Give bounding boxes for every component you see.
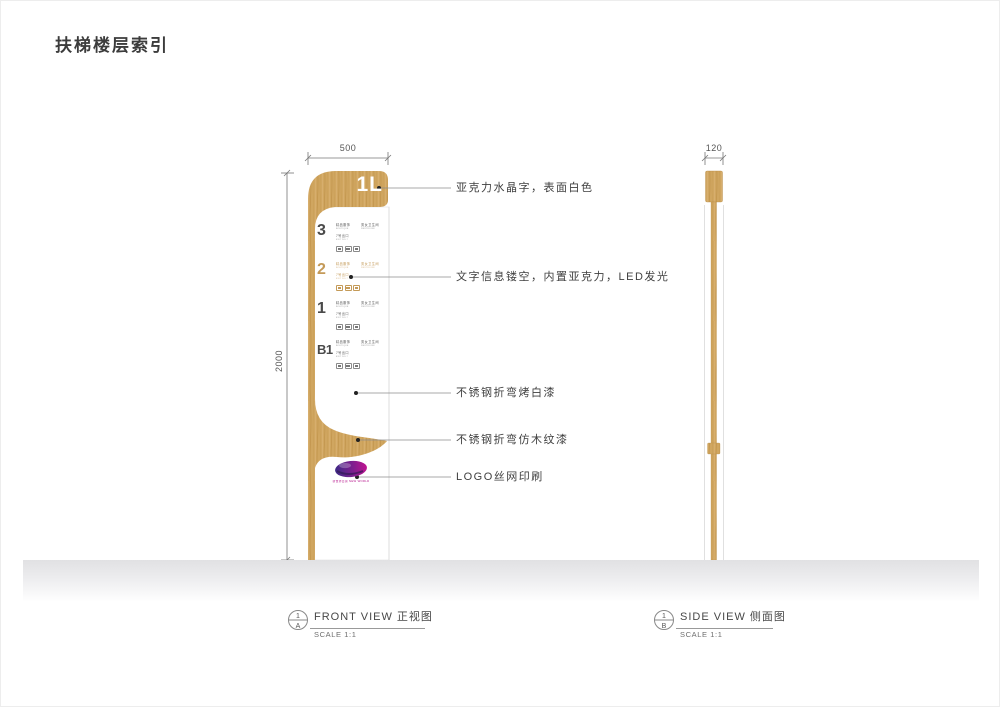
exit-name-en: EXIT NO.7 <box>336 317 349 320</box>
exit-column: 7号出口 EXIT NO.7 <box>336 274 349 281</box>
dim-line-500 <box>305 152 391 165</box>
facility-column: 男女卫生间 RESTROOM <box>361 224 379 231</box>
exit-column: 7号出口 EXIT NO.7 <box>336 313 349 320</box>
store-column: 精品服饰 BOUTIQUE <box>336 224 350 231</box>
exit-name-en: EXIT NO.7 <box>336 278 349 281</box>
side-ref-top: 1 <box>662 613 666 620</box>
logo-caption-text: 新世界百货 NEW WORLD <box>332 480 370 483</box>
elevator-icon <box>345 246 352 252</box>
restroom-icon <box>353 246 360 252</box>
amenity-icon-row <box>336 363 360 369</box>
elevator-icon <box>345 324 352 330</box>
floor-row-1: 1 精品服饰 BOUTIQUE 男女卫生间 RESTROOM 7号出口 EXIT… <box>317 299 389 335</box>
dimension-width-front: 500 <box>308 143 388 153</box>
facility-name-en: RESTROOM <box>361 267 379 270</box>
exit-column: 7号出口 EXIT NO.7 <box>336 235 349 242</box>
floor-number: B1 <box>317 341 334 359</box>
store-name-en: BOUTIQUE <box>336 306 350 309</box>
exit-column: 7号出口 EXIT NO.7 <box>336 352 349 359</box>
store-name-en: BOUTIQUE <box>336 228 350 231</box>
amenity-icon-row <box>336 285 360 291</box>
annotation-white-paint: 不锈钢折弯烤白漆 <box>456 387 556 400</box>
side-view-scale: SCALE 1:1 <box>680 630 723 639</box>
dim-line-120 <box>702 152 726 165</box>
annotation-logo-silkscreen: LOGO丝网印刷 <box>456 471 544 484</box>
front-view-scale: SCALE 1:1 <box>314 630 357 639</box>
dimension-width-side: 120 <box>697 143 731 153</box>
restroom-icon <box>353 324 360 330</box>
escalator-icon <box>336 285 343 291</box>
front-ref-top: 1 <box>296 613 300 620</box>
front-ref-bottom: A <box>296 623 301 630</box>
exit-name-en: EXIT NO.7 <box>336 356 349 359</box>
floor-number: 2 <box>317 261 334 279</box>
page-title: 扶梯楼层索引 <box>55 31 169 56</box>
annotation-woodgrain-paint: 不锈钢折弯仿木纹漆 <box>456 434 569 447</box>
floor-ground-band <box>23 560 979 602</box>
amenity-icon-row <box>336 324 360 330</box>
front-view-caption: FRONT VIEW 正视图 <box>314 611 433 624</box>
elevator-icon <box>345 285 352 291</box>
store-name-en: BOUTIQUE <box>336 267 350 270</box>
store-column: 精品服饰 BOUTIQUE <box>336 341 350 348</box>
amenity-icon-row <box>336 246 360 252</box>
escalator-icon <box>336 246 343 252</box>
restroom-icon <box>353 363 360 369</box>
side-ref-bottom: B <box>662 623 667 630</box>
floor-number: 1 <box>317 300 334 318</box>
facility-name-en: RESTROOM <box>361 345 379 348</box>
side-view-drawing <box>705 171 724 560</box>
design-sheet: 1 A 1 B 扶梯楼层索引 500 2000 120 1L 3 精品服饰 BO… <box>0 0 1000 707</box>
side-swoosh-block <box>708 443 721 454</box>
annotation-led-cutout: 文字信息镂空，内置亚克力，LED发光 <box>456 271 669 284</box>
side-view-caption: SIDE VIEW 侧面图 <box>680 611 786 624</box>
store-name-en: BOUTIQUE <box>336 345 350 348</box>
dimension-height-front: 2000 <box>274 341 284 381</box>
restroom-icon <box>353 285 360 291</box>
floor-row-b1: B1 精品服饰 BOUTIQUE 男女卫生间 RESTROOM 7号出口 EXI… <box>317 338 389 374</box>
elevator-icon <box>345 363 352 369</box>
facility-column: 男女卫生间 RESTROOM <box>361 302 379 309</box>
floor-row-3: 3 精品服饰 BOUTIQUE 男女卫生间 RESTROOM 7号出口 EXIT… <box>317 221 389 257</box>
facility-column: 男女卫生间 RESTROOM <box>361 341 379 348</box>
side-strip <box>711 202 717 560</box>
annotation-acrylic-letters: 亚克力水晶字，表面白色 <box>456 182 594 195</box>
store-column: 精品服饰 BOUTIQUE <box>336 263 350 270</box>
floor-row-2-highlighted: 2 精品服饰 BOUTIQUE 男女卫生间 RESTROOM 7号出口 EXIT… <box>317 260 389 296</box>
facility-name-en: RESTROOM <box>361 306 379 309</box>
store-column: 精品服饰 BOUTIQUE <box>336 302 350 309</box>
side-header-block <box>706 171 723 202</box>
facility-column: 男女卫生间 RESTROOM <box>361 263 379 270</box>
escalator-icon <box>336 324 343 330</box>
exit-name-en: EXIT NO.7 <box>336 239 349 242</box>
floor-number: 3 <box>317 222 334 240</box>
facility-name-en: RESTROOM <box>361 228 379 231</box>
sign-header-floor-label: 1L <box>347 173 383 197</box>
escalator-icon <box>336 363 343 369</box>
